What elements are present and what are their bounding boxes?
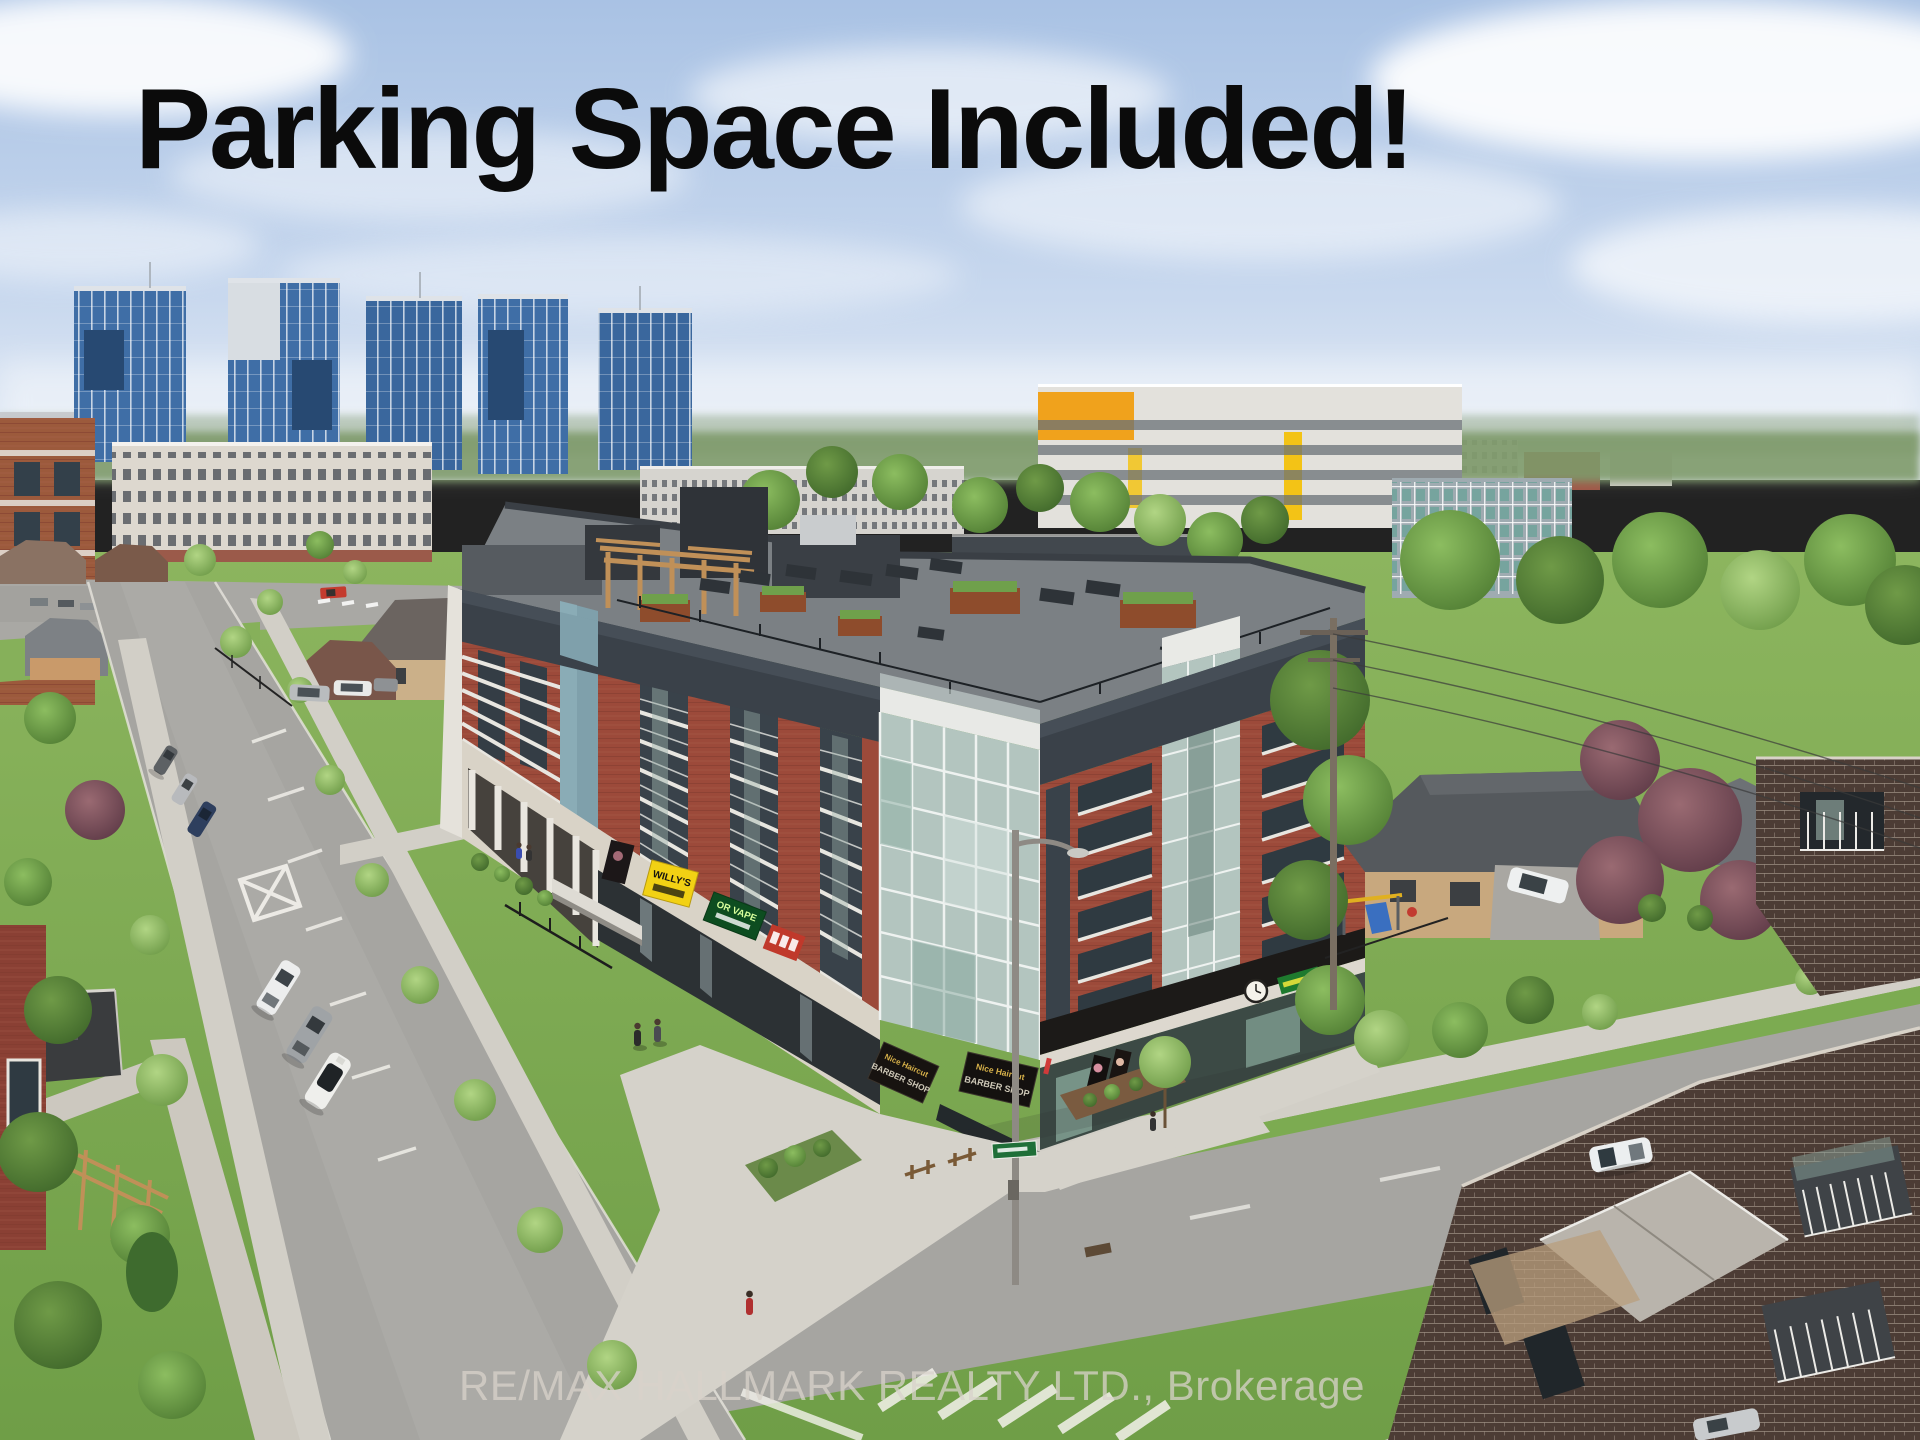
brokerage-watermark: RE/MAX HALLMARK REALTY LTD., Brokerage [459, 1362, 1365, 1409]
blue-tower [598, 286, 692, 470]
blue-tower [478, 294, 568, 474]
blue-tower [366, 272, 462, 470]
street-name-sign [992, 1141, 1037, 1159]
white-midrise-left [112, 442, 432, 562]
blue-tower [228, 278, 340, 470]
listing-photo: WILLY'S OR VAPE [0, 0, 1920, 1440]
headline-overlay: Parking Space Included! [135, 66, 1413, 193]
